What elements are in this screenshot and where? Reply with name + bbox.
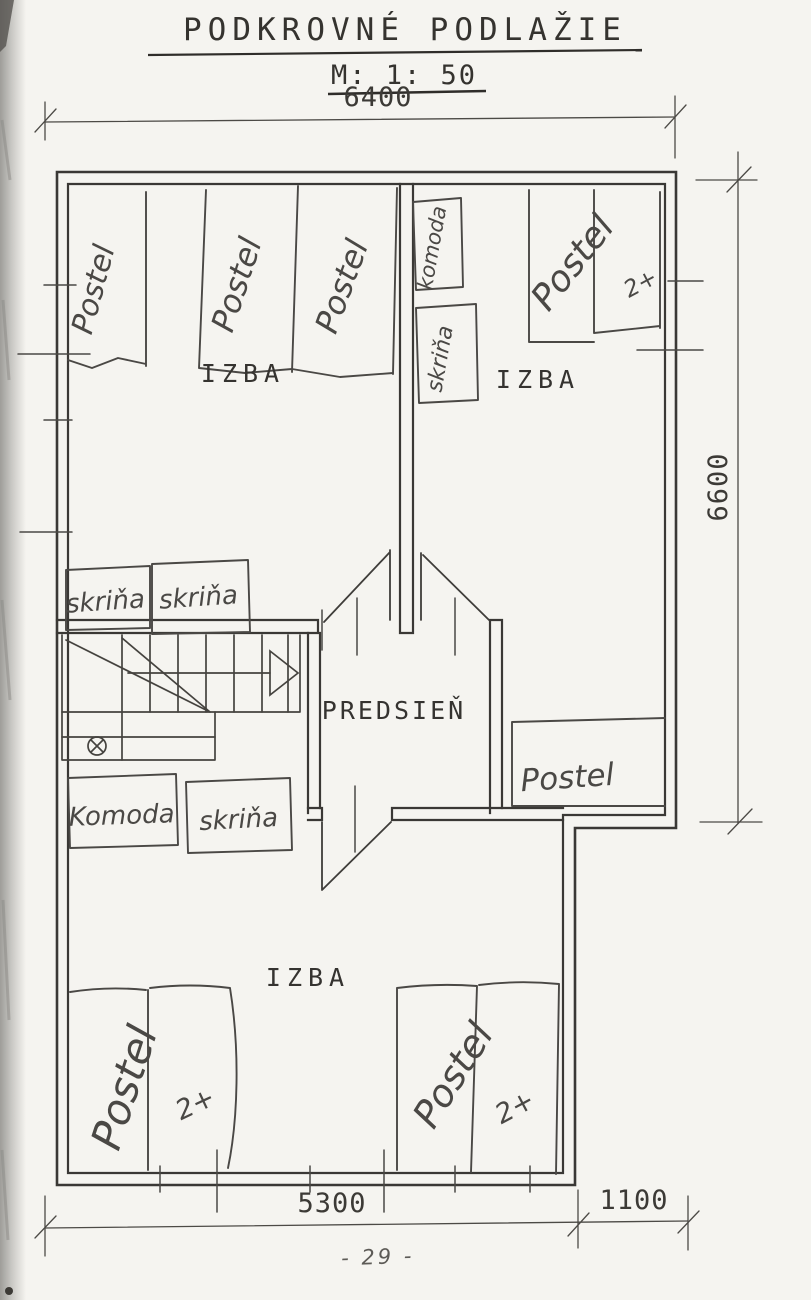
dim-top-value: 6400 [343,82,412,113]
scanned-floorplan-page: PODKROVNÉ PODLAŽIE M: 1: 50 6400 6600 53… [0,0,811,1300]
drawing-title: PODKROVNÉ PODLAŽIE [183,12,627,48]
page-number: - 29 - [341,1244,415,1271]
room-label-bottom: IZBA [266,963,350,992]
dim-bottom-main-value: 5300 [297,1188,366,1219]
room-label-top-left: IZBA [201,359,285,388]
hallway-label: PREDSIEŇ [322,696,466,725]
room-label-top-right: IZBA [496,365,580,394]
binding-edge [0,0,26,1300]
single-bed-label: Postel [519,757,615,799]
lower-dresser-label: Komoda [68,799,175,833]
landing-wardrobe-2-label: skriňa [158,580,239,615]
lower-wardrobe-label: skriňa [198,803,278,837]
floorplan-drawing: PODKROVNÉ PODLAŽIE M: 1: 50 6400 6600 53… [0,0,811,1300]
landing-wardrobe-1-label: skriňa [65,584,146,619]
scan-dot [5,1287,13,1295]
dim-right-value: 6600 [703,452,734,521]
dim-bottom-step-value: 1100 [599,1185,668,1216]
